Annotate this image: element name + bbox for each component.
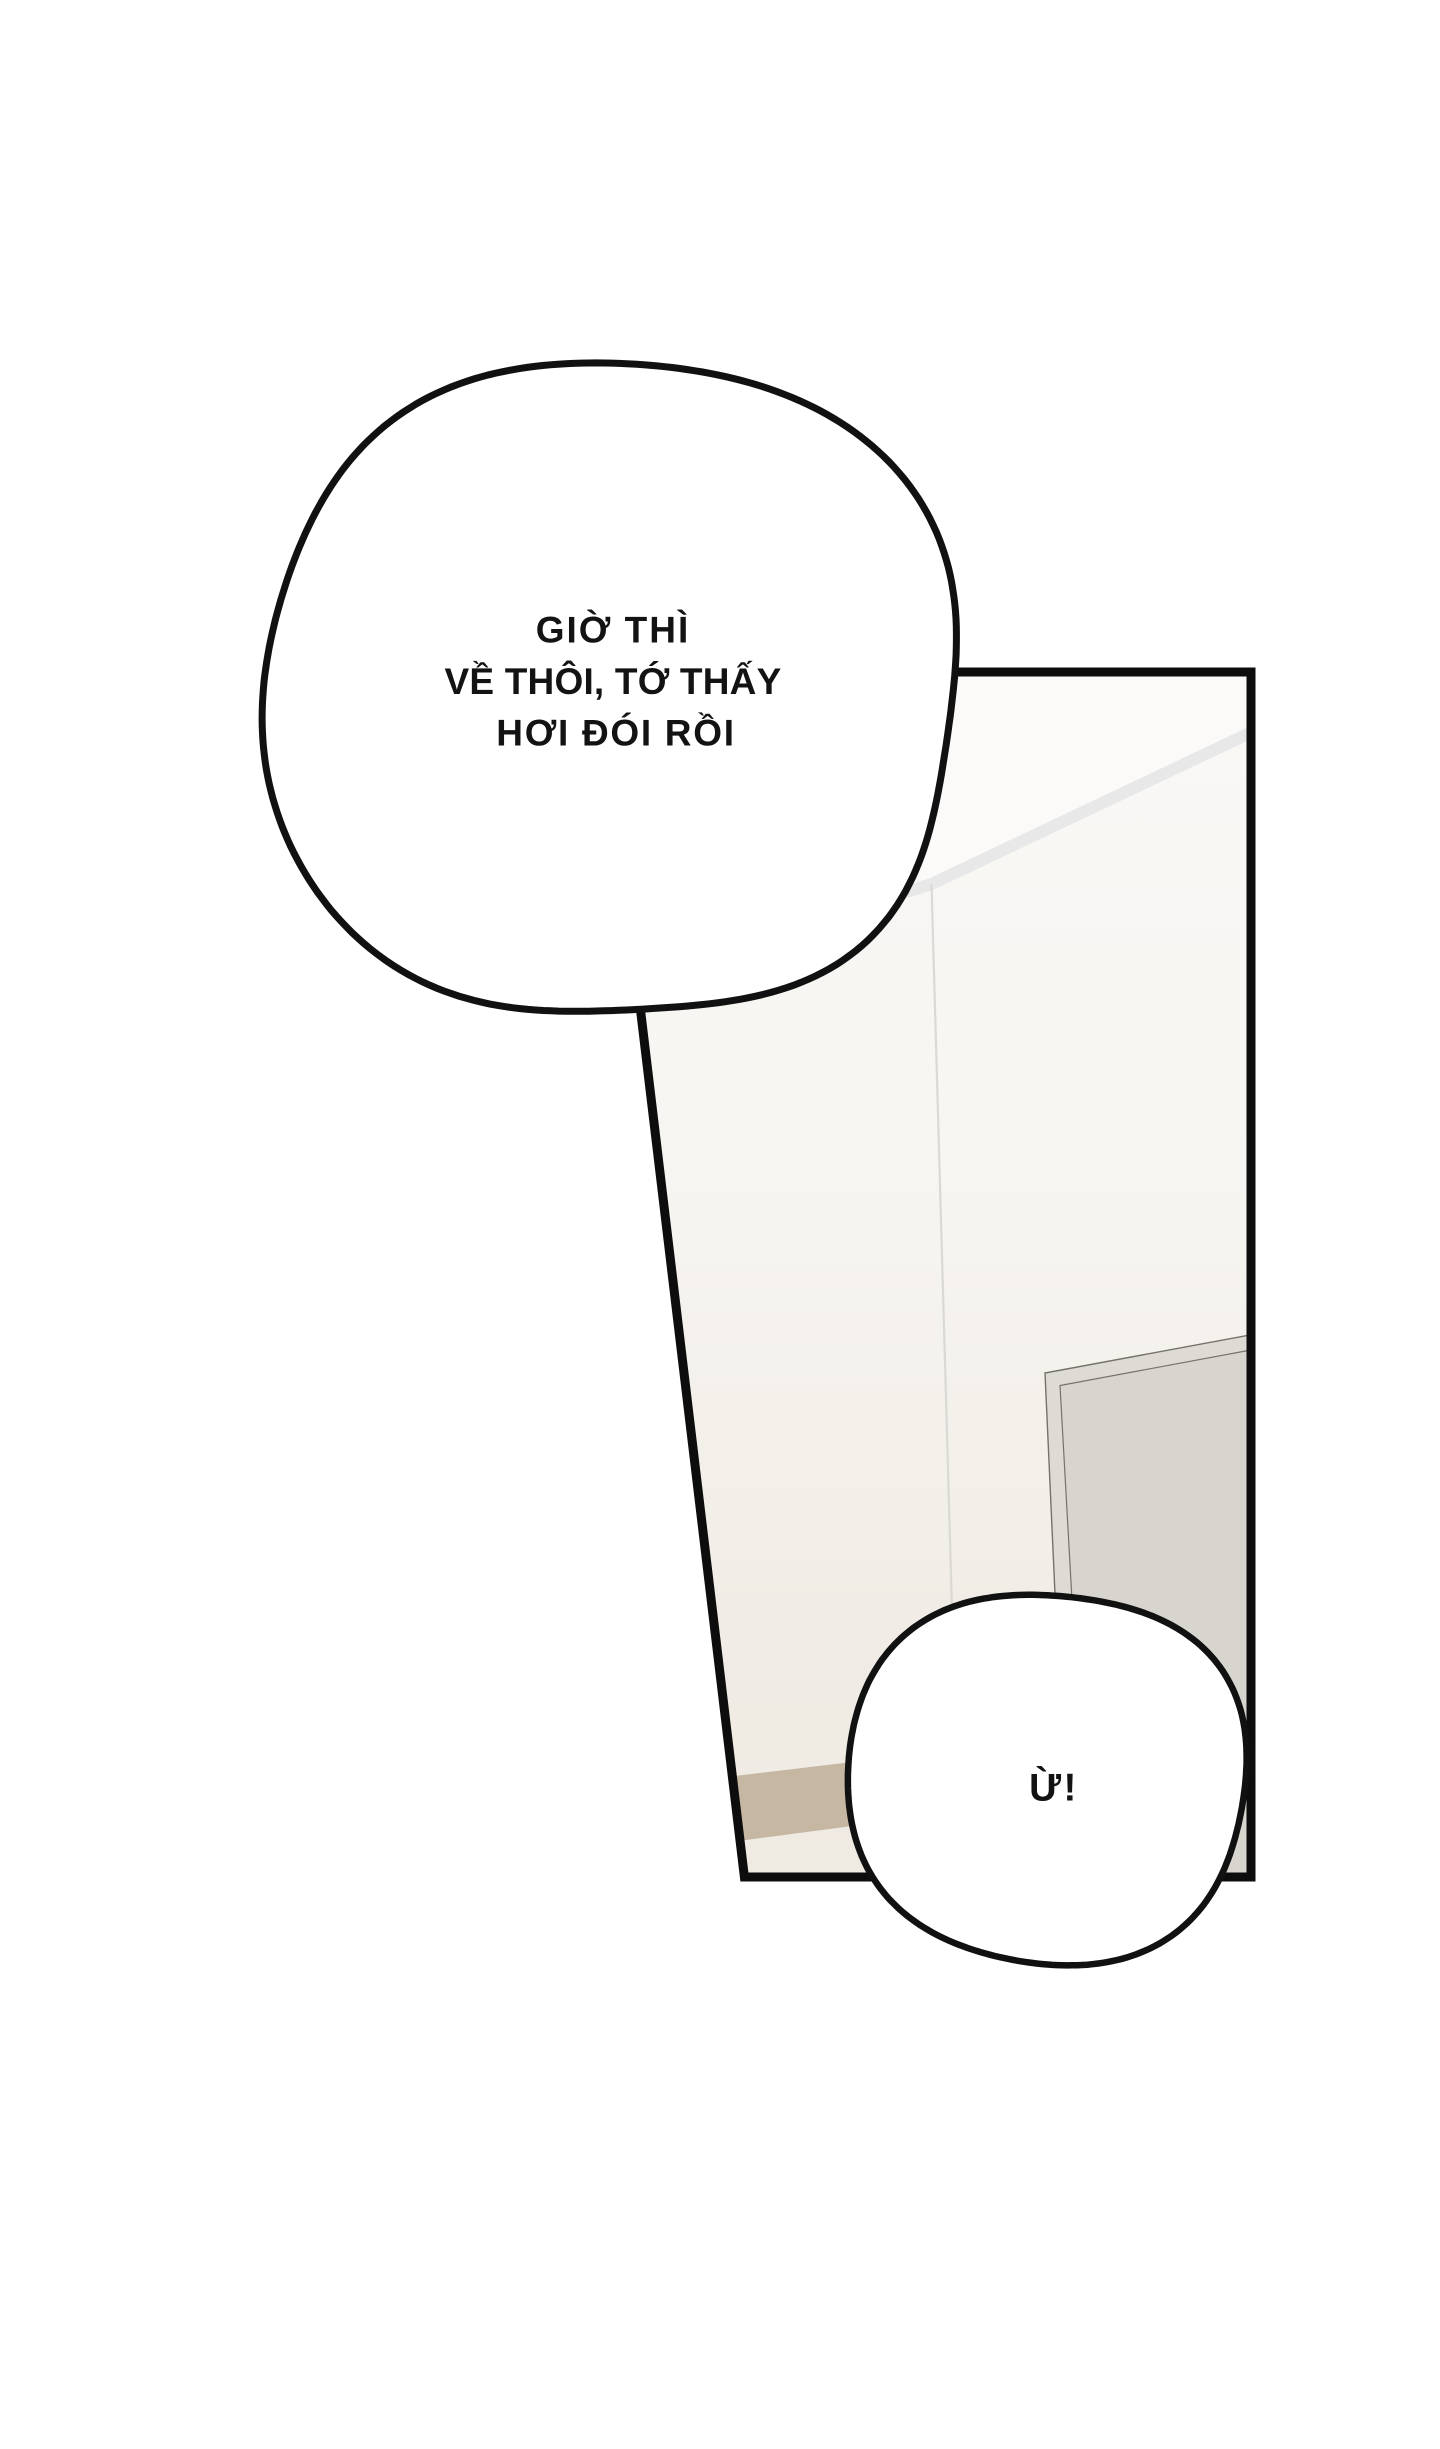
svg-text:GIỜ THÌ: GIỜ THÌ bbox=[536, 609, 691, 651]
svg-text:Ừ!: Ừ! bbox=[1029, 1766, 1079, 1810]
svg-text:HƠI ĐÓI RỒI: HƠI ĐÓI RỒI bbox=[496, 712, 735, 754]
svg-text:VỀ THÔI, TỚ THẤY: VỀ THÔI, TỚ THẤY bbox=[445, 660, 782, 702]
